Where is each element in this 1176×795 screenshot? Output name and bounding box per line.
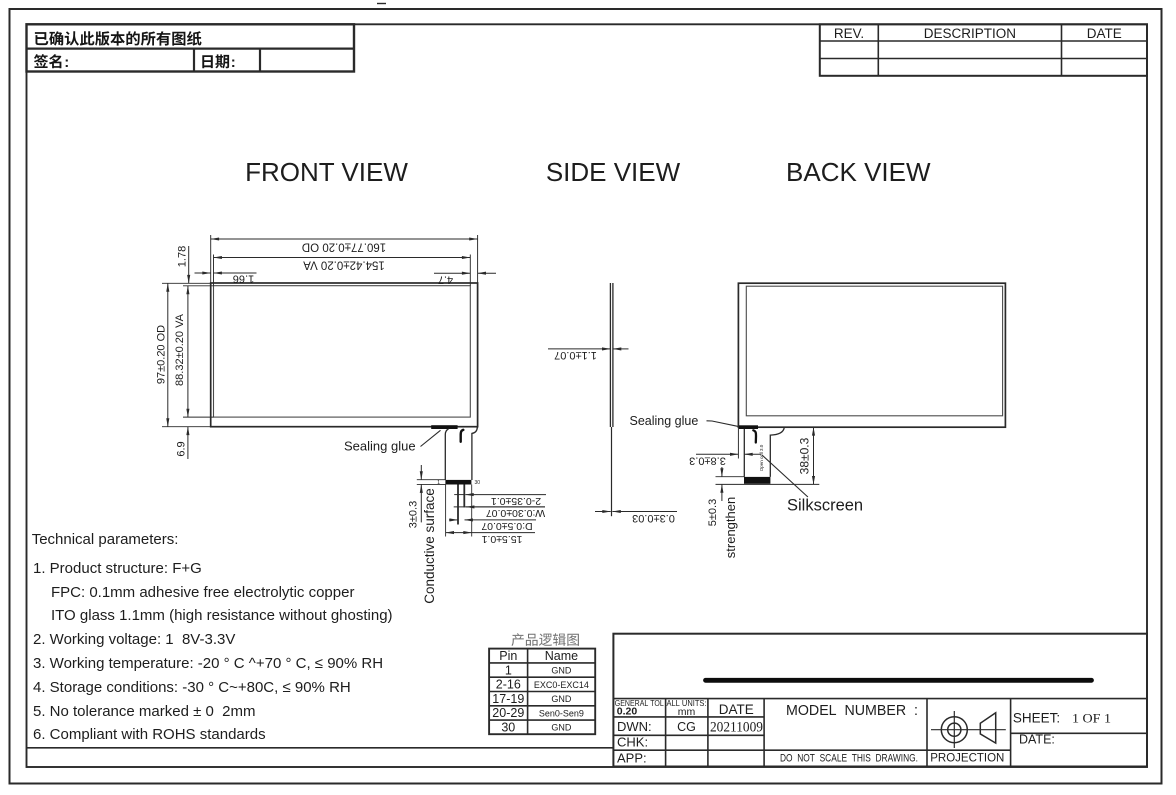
- svg-text:4. Storage conditions: -30 ° C: 4. Storage conditions: -30 ° C~+80C, ≤ 9…: [33, 679, 351, 696]
- svg-text:1 OF 1: 1 OF 1: [1072, 711, 1111, 726]
- svg-text:5±0.3: 5±0.3: [707, 499, 719, 526]
- svg-text:DATE: DATE: [719, 702, 754, 717]
- svg-text:Sealing glue: Sealing glue: [630, 414, 699, 428]
- svg-text:15.5±0.1: 15.5±0.1: [481, 533, 522, 545]
- svg-text:Silkscreen: Silkscreen: [787, 497, 863, 515]
- svg-text:MODEL NUMBER :: MODEL NUMBER :: [786, 703, 918, 719]
- svg-text:GND: GND: [551, 694, 572, 704]
- svg-text:2-0.35±0.1: 2-0.35±0.1: [491, 495, 541, 507]
- svg-text::: :: [64, 54, 69, 71]
- svg-text:1.66: 1.66: [233, 273, 254, 285]
- svg-text:Conductive surface: Conductive surface: [422, 488, 437, 604]
- svg-text:97±0.20 OD: 97±0.20 OD: [155, 325, 167, 384]
- svg-text:Pin: Pin: [499, 649, 517, 663]
- svg-text:DESCRIPTION: DESCRIPTION: [924, 26, 1016, 41]
- svg-text:Technical parameters:: Technical parameters:: [32, 531, 179, 548]
- svg-text:Sen0-Sen9: Sen0-Sen9: [539, 708, 584, 718]
- svg-text:GND: GND: [551, 723, 572, 733]
- svg-text:0.3±0.03: 0.3±0.03: [632, 512, 675, 524]
- svg-text:6. Compliant with ROHS standar: 6. Compliant with ROHS standards: [33, 726, 266, 743]
- svg-text:6.9: 6.9: [176, 441, 188, 456]
- svg-text:20211009: 20211009: [710, 719, 763, 735]
- svg-text:strengthen: strengthen: [723, 497, 738, 558]
- svg-text:5. No tolerance marked ± 0 2m: 5. No tolerance marked ± 0 2mm: [33, 703, 256, 720]
- svg-text:3.8±0.3: 3.8±0.3: [689, 455, 726, 467]
- svg-text:3±0.3: 3±0.3: [407, 501, 419, 528]
- svg-text:DATE: DATE: [1087, 26, 1122, 41]
- svg-text:1: 1: [437, 480, 440, 486]
- svg-text:PROJECTION: PROJECTION: [930, 753, 1004, 765]
- svg-text:CG: CG: [677, 720, 696, 734]
- svg-text:20-29: 20-29: [492, 706, 524, 720]
- svg-text:3. Working temperature: -20 °: 3. Working temperature: -20 ° C ^+70 ° C…: [33, 655, 383, 672]
- svg-text:160.77±0.20 OD: 160.77±0.20 OD: [302, 240, 386, 252]
- svg-text:30: 30: [475, 480, 481, 486]
- svg-text:W:0.30±0.07: W:0.30±0.07: [486, 507, 545, 519]
- svg-text:SIDE VIEW: SIDE VIEW: [546, 157, 681, 187]
- svg-text:DO NOT SCALE THIS DRAWING.: DO NOT SCALE THIS DRAWING.: [780, 752, 918, 764]
- svg-text:Sealing glue: Sealing glue: [344, 439, 416, 454]
- svg-text:FRONT VIEW: FRONT VIEW: [245, 157, 408, 187]
- svg-text:Name: Name: [545, 649, 578, 663]
- svg-text:1.78: 1.78: [177, 246, 189, 267]
- svg-text:CHK:: CHK:: [617, 735, 648, 750]
- svg-text:4.7: 4.7: [438, 274, 453, 286]
- svg-text:ITO glass 1.1mm (high resistan: ITO glass 1.1mm (high resistance without…: [51, 607, 393, 624]
- svg-text:2. Working voltage: 1 8V-3.3V: 2. Working voltage: 1 8V-3.3V: [33, 631, 235, 648]
- svg-text:Open cell 3.0: Open cell 3.0: [759, 444, 764, 471]
- svg-text:1.1±0.07: 1.1±0.07: [554, 349, 597, 361]
- svg-text:154.42±0.20 VA: 154.42±0.20 VA: [303, 259, 385, 271]
- svg-text:mm: mm: [678, 706, 696, 718]
- svg-text:0.20: 0.20: [617, 706, 638, 718]
- svg-text:17-19: 17-19: [492, 692, 524, 706]
- svg-text:FPC: 0.1mm adhesive free elect: FPC: 0.1mm adhesive free electrolytic co…: [51, 584, 354, 601]
- svg-text:EXC0-EXC14: EXC0-EXC14: [534, 680, 589, 690]
- svg-text:APP:: APP:: [617, 750, 647, 765]
- svg-text:SHEET:: SHEET:: [1013, 711, 1060, 726]
- svg-text:30: 30: [501, 720, 515, 734]
- svg-text:DATE:: DATE:: [1019, 733, 1055, 747]
- svg-text:BACK VIEW: BACK VIEW: [786, 157, 931, 187]
- svg-text:2-16: 2-16: [496, 678, 521, 692]
- svg-text:GND: GND: [551, 666, 572, 676]
- svg-text:88.32±0.20 VA: 88.32±0.20 VA: [174, 313, 186, 386]
- svg-text:1: 1: [505, 663, 512, 677]
- svg-text::: :: [231, 54, 236, 71]
- svg-text:DWN:: DWN:: [617, 719, 652, 734]
- svg-text:D:0.5±0.07: D:0.5±0.07: [481, 520, 532, 532]
- svg-text:REV.: REV.: [834, 26, 864, 41]
- svg-text:1. Product structure: F+G: 1. Product structure: F+G: [33, 560, 202, 577]
- svg-text:38±0.3: 38±0.3: [798, 437, 812, 474]
